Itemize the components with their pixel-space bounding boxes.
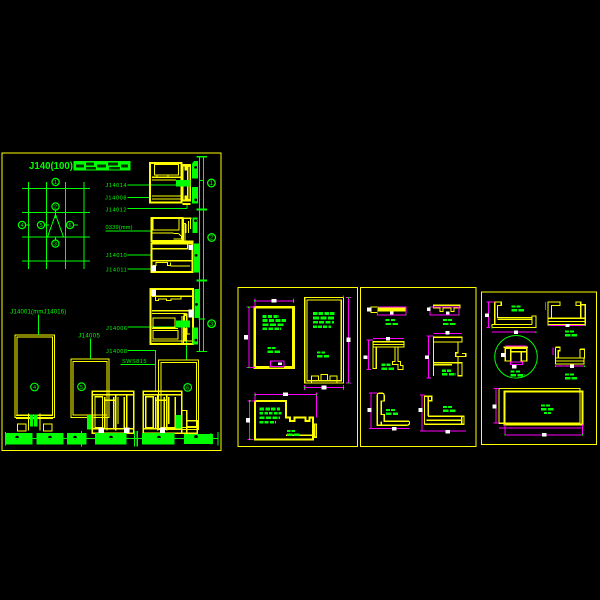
svg-text:J14012: J14012 — [106, 207, 127, 213]
svg-text:2: 2 — [54, 205, 57, 211]
svg-text:J14008: J14008 — [105, 195, 127, 201]
svg-text:1: 1 — [54, 180, 57, 186]
svg-text:4: 4 — [33, 385, 36, 391]
svg-text:J14010: J14010 — [106, 253, 127, 259]
svg-text:6: 6 — [186, 386, 189, 392]
svg-text:4: 4 — [20, 223, 23, 229]
svg-text:J14005: J14005 — [78, 333, 100, 339]
svg-text:5: 5 — [39, 223, 42, 229]
svg-text:J14001(mmJ14016): J14001(mmJ14016) — [10, 310, 66, 316]
svg-text:J14014: J14014 — [106, 183, 127, 189]
svg-text:6: 6 — [68, 223, 71, 229]
svg-text:J14008: J14008 — [106, 349, 127, 355]
svg-text:3: 3 — [54, 242, 57, 248]
svg-text:0339(mm): 0339(mm) — [106, 225, 133, 231]
svg-text:5: 5 — [80, 385, 83, 391]
svg-text:J14011: J14011 — [106, 267, 127, 273]
svg-text:J14006: J14006 — [106, 326, 127, 332]
svg-text:J140(100): J140(100) — [29, 160, 73, 172]
